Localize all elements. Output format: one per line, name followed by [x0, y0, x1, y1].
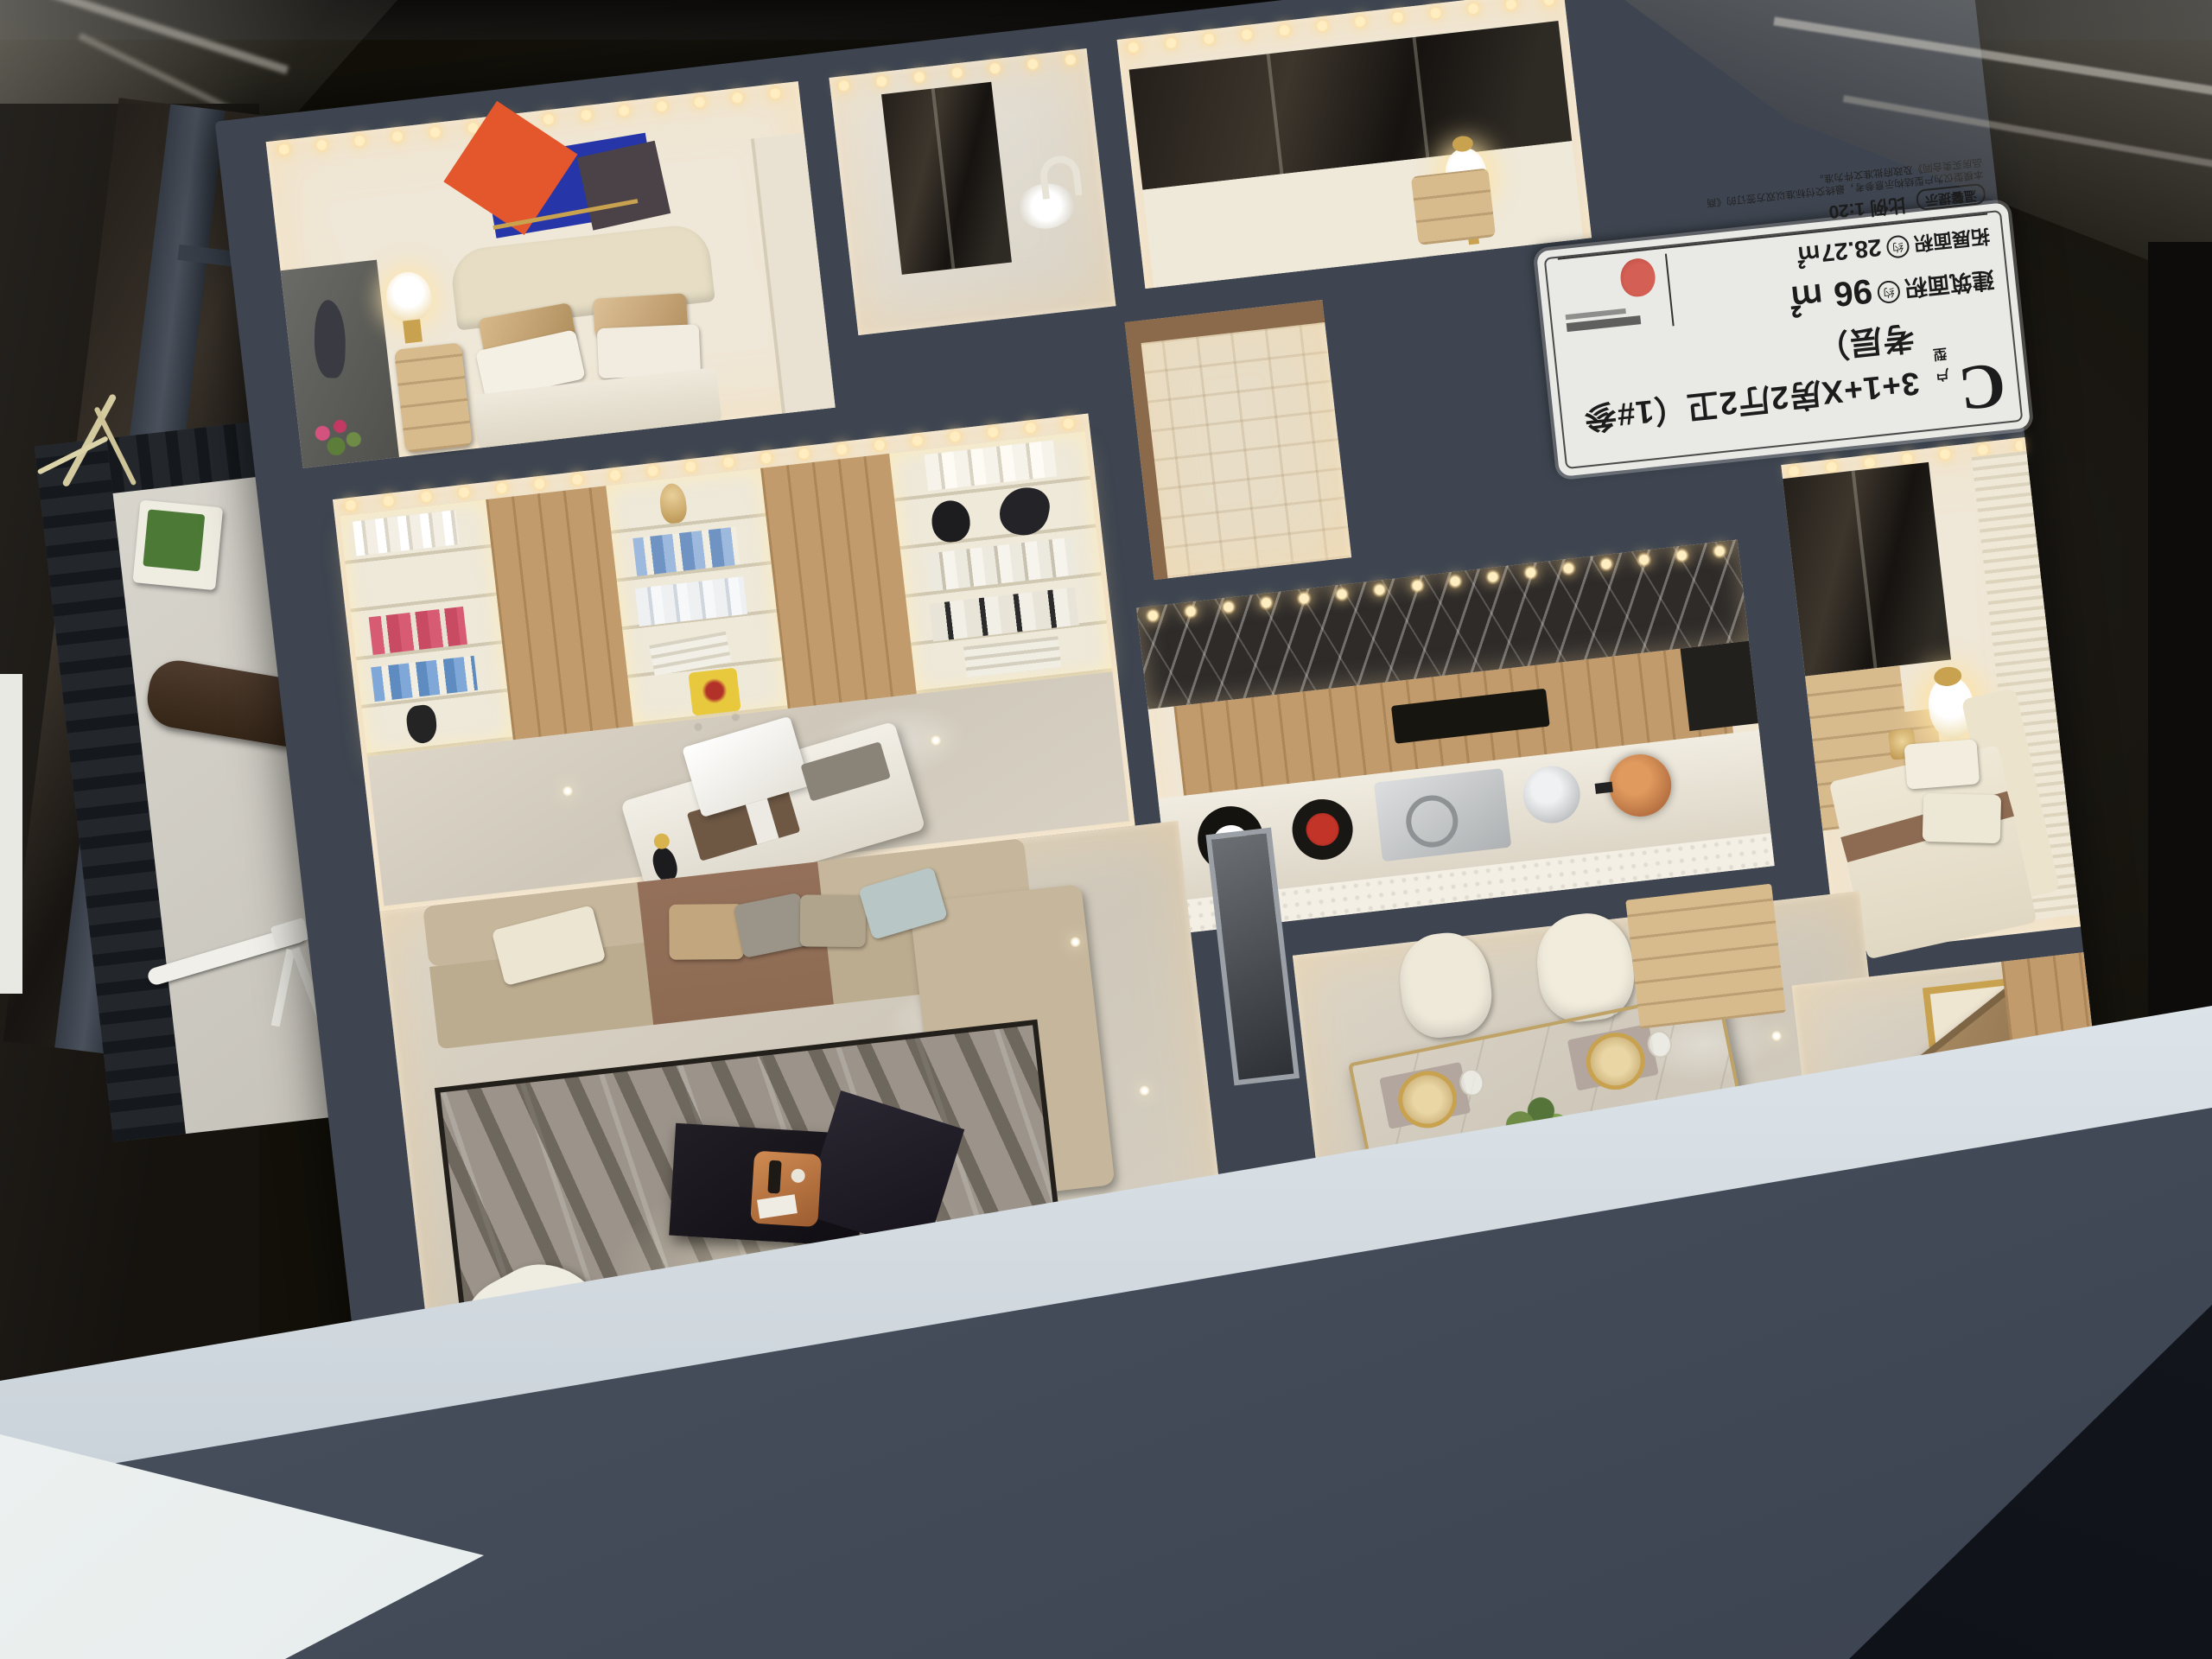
- teapot-spout: [1444, 1157, 1463, 1173]
- desk-accessory-tray: [800, 741, 891, 801]
- second-bedroom: [1781, 437, 2081, 954]
- black-vase: [930, 499, 972, 544]
- wall-art-gray-square: [577, 141, 671, 231]
- planter-grass: [143, 509, 205, 571]
- floor-led-dot: [1888, 1175, 1901, 1188]
- floor-led-dot: [1821, 1085, 1834, 1098]
- yellow-bottle: [1564, 1112, 1605, 1166]
- dining-chair: [1556, 1242, 1672, 1371]
- bed: [448, 222, 728, 448]
- shelf-column-lit: [340, 499, 513, 756]
- scale-text: 比例 1:20: [1827, 194, 1907, 221]
- ext-area-label: 拓展面积: [1913, 223, 1992, 258]
- shower-glass-partition: [881, 82, 1012, 275]
- door-handle-gold: [1966, 1105, 1993, 1131]
- mini-glass: [791, 1168, 805, 1183]
- book-row-blue: [371, 656, 478, 702]
- shelf-column-lit: [889, 431, 1112, 694]
- lamp-gold-base: [403, 319, 423, 343]
- flower-bouquet: [302, 410, 368, 465]
- living-room: [379, 821, 1243, 1478]
- dining-chair: [1395, 928, 1496, 1041]
- table-lamp: [384, 270, 436, 343]
- pot-handle: [1595, 782, 1613, 794]
- book-row: [929, 588, 1079, 642]
- book-row: [353, 510, 460, 556]
- book-row-blue: [632, 527, 740, 576]
- cooktop-inset: [1391, 689, 1550, 744]
- stove-sink-unit: [1374, 768, 1511, 861]
- gold-trinket: [652, 831, 671, 850]
- build-area-value: 96 ㎡: [1788, 269, 1875, 327]
- display-case-photo: C 户型 3+1+X房2厅2卫（1#参考层） 建筑面积 约 96 ㎡ 拓展面积 …: [0, 0, 2212, 1659]
- pantry-closet: [1625, 884, 1786, 1029]
- approx-badge: 约: [1877, 280, 1902, 305]
- book-row: [927, 537, 1077, 592]
- black-vase: [405, 703, 439, 745]
- burner-ring: [1403, 792, 1460, 849]
- silver-pot: [1520, 763, 1583, 826]
- toilet-tank-hose: [1039, 154, 1083, 200]
- approx-badge: 约: [1885, 234, 1910, 259]
- lamp-shade-glow: [384, 270, 434, 325]
- placard-inner-frame: C 户型 3+1+X房2厅2卫（1#参考层） 建筑面积 约 96 ㎡ 拓展面积 …: [1544, 210, 2024, 469]
- hallway: [1125, 300, 1351, 580]
- pillow-tan: [669, 904, 744, 960]
- developer-logo-block: [1555, 254, 1675, 338]
- book-row: [635, 576, 747, 626]
- mini-bottle: [767, 1160, 781, 1194]
- bedside-bench: [394, 342, 473, 453]
- copper-serving-tray: [750, 1151, 822, 1228]
- pillow-white: [1923, 793, 2001, 843]
- wardrobe-knob: [2063, 1197, 2075, 1210]
- secondary-lounge: [1117, 0, 1592, 289]
- floor-led-dot: [1930, 1209, 1943, 1222]
- white-edge-sliver: [0, 674, 22, 994]
- build-area-label: 建筑面积: [1904, 265, 1996, 307]
- range-hood: [1681, 641, 1758, 731]
- unit-letter: C: [1956, 355, 2008, 417]
- right-dark-edge: [2148, 242, 2212, 1106]
- shelf-column-lit: [606, 468, 788, 727]
- pan-with-food: [1289, 796, 1356, 862]
- floor-led-dot: [1853, 1134, 1866, 1147]
- unit-suffix: 户型: [1924, 344, 1950, 387]
- telescope-leg: [271, 949, 296, 1027]
- dining-table: [1348, 988, 1764, 1282]
- red-seal-stamp: [1618, 257, 1656, 298]
- wardrobe-panel: [751, 133, 836, 414]
- balcony-planter: [132, 499, 223, 590]
- study: [333, 414, 1135, 912]
- book-row: [925, 440, 1058, 491]
- pillow-taupe: [800, 894, 867, 947]
- gold-teapot: [1453, 1141, 1506, 1185]
- wardrobe-knob: [2050, 1077, 2063, 1090]
- dining-chair: [1417, 1259, 1513, 1372]
- master-bedroom: [266, 81, 836, 468]
- pillow-white: [1904, 739, 1980, 789]
- telescope-mount: [270, 918, 310, 949]
- door-lintel: [1125, 300, 1325, 345]
- red-dish: [1305, 811, 1341, 848]
- entry-corridor: [1792, 952, 2125, 1346]
- black-vase: [996, 483, 1053, 540]
- door-frame-side: [1125, 321, 1168, 580]
- copper-pot: [1605, 751, 1675, 820]
- book-stack: [963, 636, 1061, 677]
- gold-ornament: [658, 482, 689, 524]
- toilet: [1013, 154, 1085, 255]
- book-row-pink: [369, 607, 467, 655]
- mini-magazine: [757, 1194, 798, 1218]
- lounge-nightstand: [1411, 168, 1496, 245]
- bathroom: [829, 48, 1116, 335]
- bedroom-glass-wall: [1783, 462, 1951, 677]
